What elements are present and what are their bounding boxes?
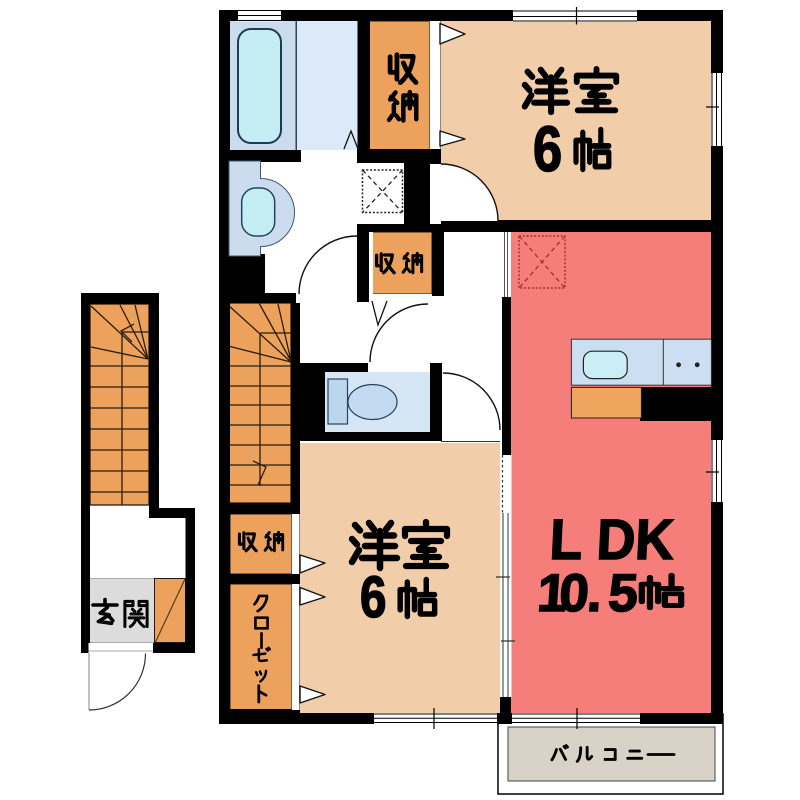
svg-text:6: 6 <box>533 114 562 185</box>
svg-text:D: D <box>595 508 637 572</box>
svg-text:L: L <box>548 508 584 572</box>
svg-text:K: K <box>634 508 676 572</box>
svg-text:5: 5 <box>606 564 640 623</box>
svg-text:6: 6 <box>360 566 386 631</box>
